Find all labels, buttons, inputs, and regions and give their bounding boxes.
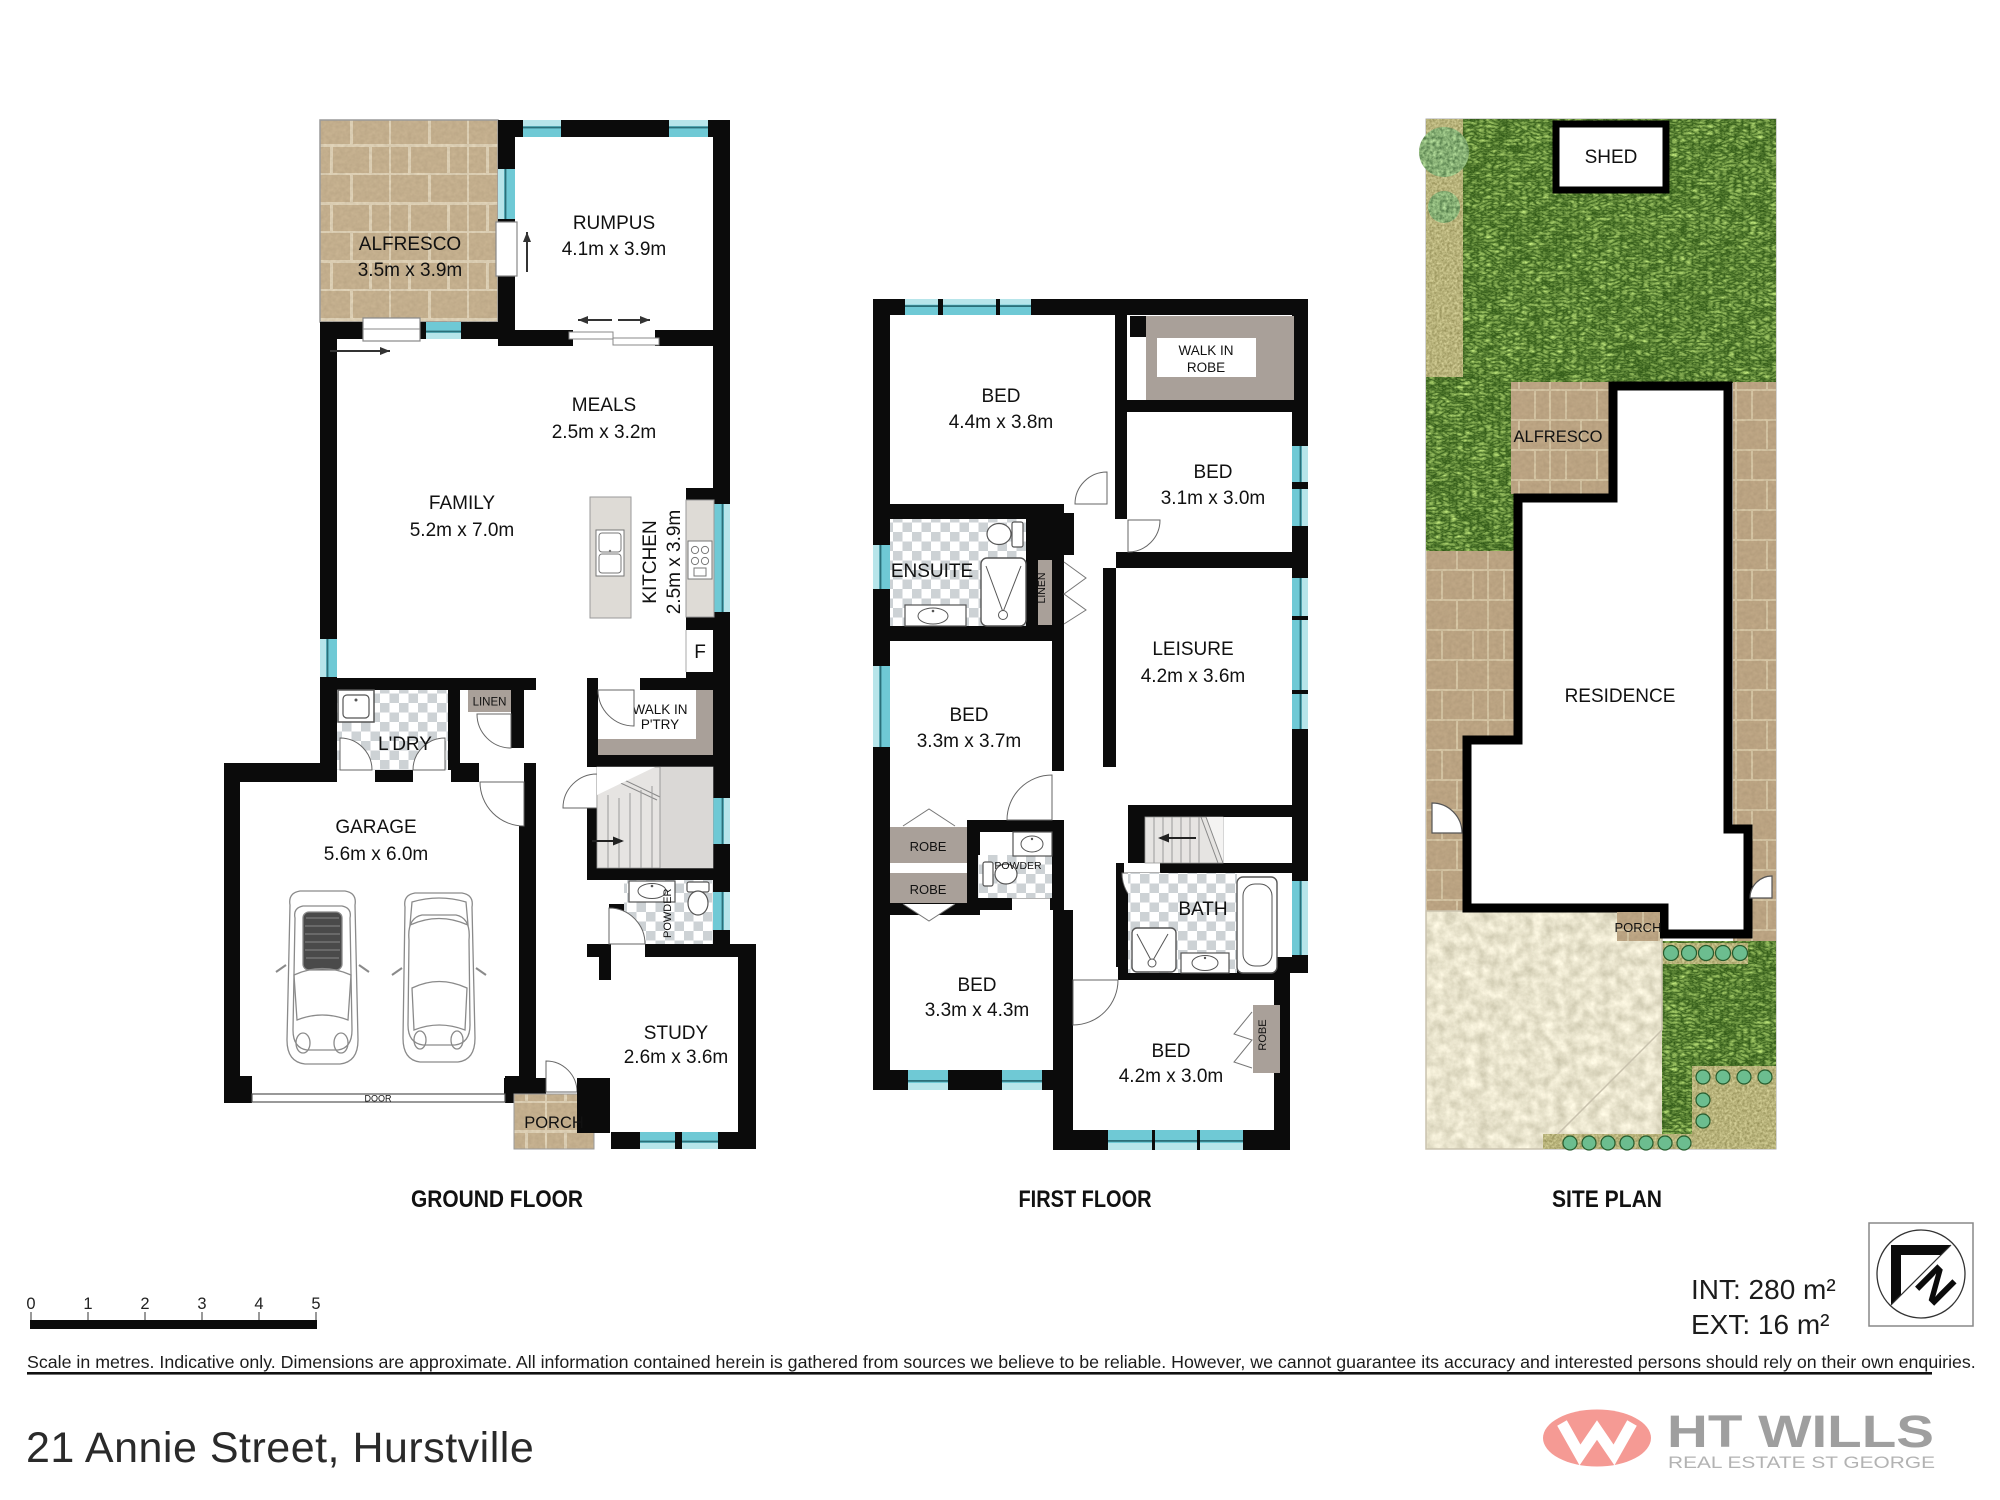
- svg-text:Scale in metres. Indicative on: Scale in metres. Indicative only. Dimens…: [27, 1352, 1976, 1372]
- svg-text:BED: BED: [1193, 462, 1232, 483]
- svg-text:GARAGE: GARAGE: [335, 817, 416, 838]
- svg-text:3.3m x 3.7m: 3.3m x 3.7m: [917, 731, 1022, 752]
- svg-text:EXT: 16 m²: EXT: 16 m²: [1691, 1309, 1829, 1340]
- svg-text:BED: BED: [957, 975, 996, 996]
- svg-text:POWDER: POWDER: [662, 888, 674, 938]
- svg-text:3.1m x 3.0m: 3.1m x 3.0m: [1161, 488, 1266, 509]
- svg-text:3: 3: [197, 1295, 206, 1313]
- svg-text:HT WILLS: HT WILLS: [1667, 1406, 1934, 1457]
- svg-text:4: 4: [254, 1295, 263, 1313]
- svg-text:3.3m x 4.3m: 3.3m x 4.3m: [925, 1000, 1030, 1021]
- svg-text:REAL ESTATE ST GEORGE: REAL ESTATE ST GEORGE: [1668, 1454, 1935, 1472]
- svg-text:4.1m x 3.9m: 4.1m x 3.9m: [562, 239, 667, 260]
- svg-text:1: 1: [83, 1295, 92, 1313]
- svg-text:5.6m x 6.0m: 5.6m x 6.0m: [324, 844, 429, 865]
- svg-text:4.2m x 3.0m: 4.2m x 3.0m: [1119, 1066, 1224, 1087]
- svg-text:2.5m x 3.9m: 2.5m x 3.9m: [664, 510, 685, 615]
- svg-text:RESIDENCE: RESIDENCE: [1565, 686, 1676, 707]
- svg-text:ROBE: ROBE: [910, 839, 947, 854]
- svg-text:5: 5: [311, 1295, 320, 1313]
- svg-text:STUDY: STUDY: [644, 1023, 709, 1044]
- svg-text:3.5m x 3.9m: 3.5m x 3.9m: [358, 260, 463, 281]
- svg-text:LEISURE: LEISURE: [1152, 639, 1233, 660]
- svg-text:ROBE: ROBE: [1187, 360, 1225, 375]
- svg-text:ENSUITE: ENSUITE: [891, 561, 973, 582]
- svg-text:P'TRY: P'TRY: [641, 717, 679, 732]
- svg-text:2.5m x 3.2m: 2.5m x 3.2m: [552, 422, 657, 443]
- svg-text:KITCHEN: KITCHEN: [640, 520, 661, 603]
- svg-text:WALK IN: WALK IN: [1178, 343, 1233, 358]
- svg-text:4.2m x 3.6m: 4.2m x 3.6m: [1141, 666, 1246, 687]
- svg-text:BATH: BATH: [1178, 899, 1227, 920]
- svg-text:FAMILY: FAMILY: [429, 493, 495, 514]
- svg-text:MEALS: MEALS: [572, 395, 636, 416]
- svg-text:BED: BED: [981, 386, 1020, 407]
- svg-text:BED: BED: [949, 705, 988, 726]
- svg-text:WALK IN: WALK IN: [632, 702, 687, 717]
- svg-text:LINEN: LINEN: [473, 697, 507, 709]
- svg-text:21 Annie Street, Hurstville: 21 Annie Street, Hurstville: [26, 1424, 534, 1472]
- svg-text:POWDER: POWDER: [994, 860, 1042, 872]
- svg-text:SHED: SHED: [1585, 147, 1638, 168]
- svg-text:PORCH: PORCH: [524, 1114, 584, 1132]
- svg-text:FIRST FLOOR: FIRST FLOOR: [1019, 1186, 1152, 1213]
- svg-text:LINEN: LINEN: [1036, 573, 1048, 604]
- svg-text:BED: BED: [1151, 1041, 1190, 1062]
- svg-text:ALFRESCO: ALFRESCO: [1514, 428, 1603, 446]
- svg-text:4.4m x 3.8m: 4.4m x 3.8m: [949, 412, 1054, 433]
- svg-text:ALFRESCO: ALFRESCO: [359, 234, 461, 255]
- svg-text:2: 2: [140, 1295, 149, 1313]
- svg-text:5.2m x 7.0m: 5.2m x 7.0m: [410, 520, 515, 541]
- svg-text:F: F: [694, 642, 706, 663]
- svg-text:INT: 280 m²: INT: 280 m²: [1691, 1274, 1836, 1305]
- svg-text:SITE PLAN: SITE PLAN: [1552, 1186, 1662, 1213]
- svg-text:ROBE: ROBE: [910, 882, 947, 897]
- svg-text:2.6m x 3.6m: 2.6m x 3.6m: [624, 1047, 729, 1068]
- svg-text:ROBE: ROBE: [1257, 1019, 1269, 1050]
- svg-text:DOOR: DOOR: [365, 1094, 393, 1104]
- svg-text:PORCH: PORCH: [1615, 920, 1662, 935]
- svg-text:RUMPUS: RUMPUS: [573, 213, 655, 234]
- svg-text:L'DRY: L'DRY: [378, 734, 432, 755]
- svg-text:0: 0: [26, 1295, 35, 1313]
- svg-text:GROUND FLOOR: GROUND FLOOR: [411, 1186, 583, 1213]
